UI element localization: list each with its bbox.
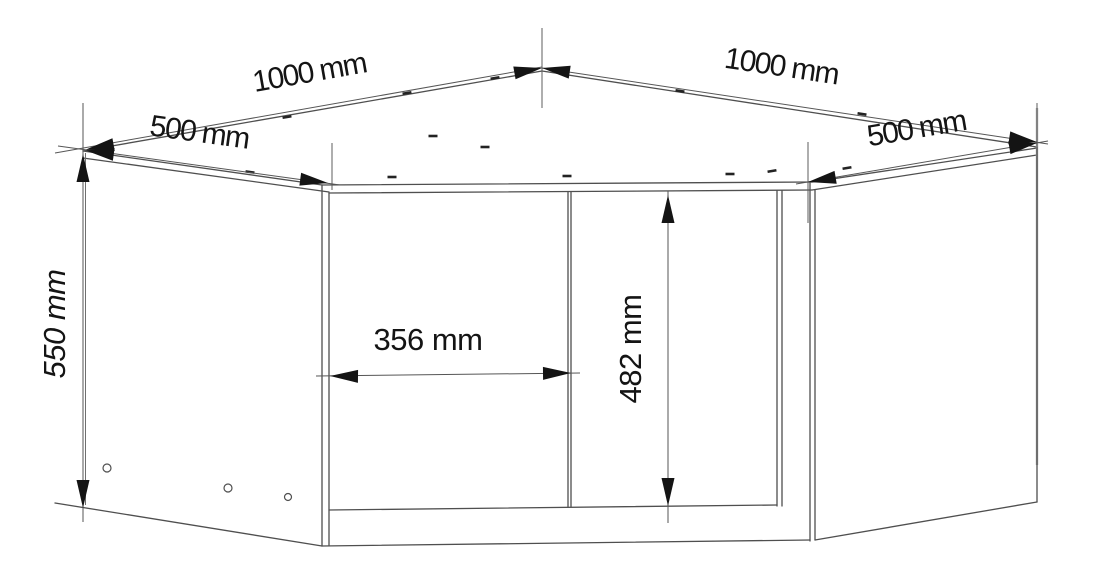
hole-mark — [676, 90, 685, 91]
dim-door-height: 482 mm — [613, 191, 675, 523]
hole-mark — [768, 170, 777, 172]
dimension-arrow-icon — [662, 478, 675, 506]
dim-door-width: 356 mm — [316, 322, 580, 383]
dim-height: 550 mm — [37, 103, 90, 522]
doors-bottom-edge — [329, 505, 777, 510]
left-panel-bottom-edge — [55, 503, 322, 546]
front-bottom-edge — [322, 540, 810, 546]
left-panel-hole — [103, 464, 111, 472]
dimension-arrow-icon — [541, 62, 571, 79]
dim-back-left-width: 1000 mm — [55, 46, 543, 156]
right-panel-bottom-edge — [815, 502, 1037, 540]
cabinet-front-face — [322, 182, 815, 546]
dim-back-right-width: 1000 mm — [541, 42, 1048, 149]
dimension-annotations: 1000 mm 1000 mm 500 mm 500 mm 550 mm — [37, 42, 1048, 523]
dimension-label: 500 mm — [865, 104, 969, 153]
hole-mark — [843, 167, 852, 169]
left-panel-hole — [285, 494, 292, 501]
dimension-arrow-icon — [513, 62, 543, 80]
dimension-arrow-icon — [299, 173, 329, 190]
top-right-side-edge — [812, 148, 1037, 182]
dimension-label: 500 mm — [148, 109, 251, 155]
hole-mark — [858, 113, 867, 114]
dimension-arrow-icon — [543, 367, 571, 380]
drawing-canvas: 1000 mm 1000 mm 500 mm 500 mm 550 mm — [0, 0, 1100, 573]
dim-left-side-depth: 500 mm — [58, 109, 340, 189]
hole-mark — [283, 116, 292, 118]
dimension-label: 1000 mm — [250, 46, 369, 98]
cabinet-left-side-panel — [55, 153, 322, 546]
top-right-thickness-edge — [812, 155, 1037, 190]
hole-mark — [403, 92, 412, 94]
top-panel-hole-marks — [246, 77, 867, 177]
dimension-arrow-icon — [77, 480, 90, 508]
top-front-edge — [322, 182, 812, 185]
left-panel-hole — [224, 484, 232, 492]
dimension-label: 1000 mm — [722, 42, 841, 92]
dim-right-side-depth: 500 mm — [796, 104, 1048, 188]
hole-mark — [491, 77, 500, 79]
dimension-label: 356 mm — [374, 322, 483, 357]
dimension-arrow-icon — [662, 195, 675, 223]
top-left-side-edge — [83, 151, 322, 185]
dimension-label: 482 mm — [613, 295, 648, 404]
dimension-arrow-icon — [330, 370, 358, 383]
cabinet-dimension-diagram: 1000 mm 1000 mm 500 mm 500 mm 550 mm — [0, 0, 1100, 573]
top-left-thickness-edge — [83, 158, 329, 192]
dimension-label: 550 mm — [37, 270, 72, 379]
dimension-arrow-icon — [807, 171, 837, 188]
